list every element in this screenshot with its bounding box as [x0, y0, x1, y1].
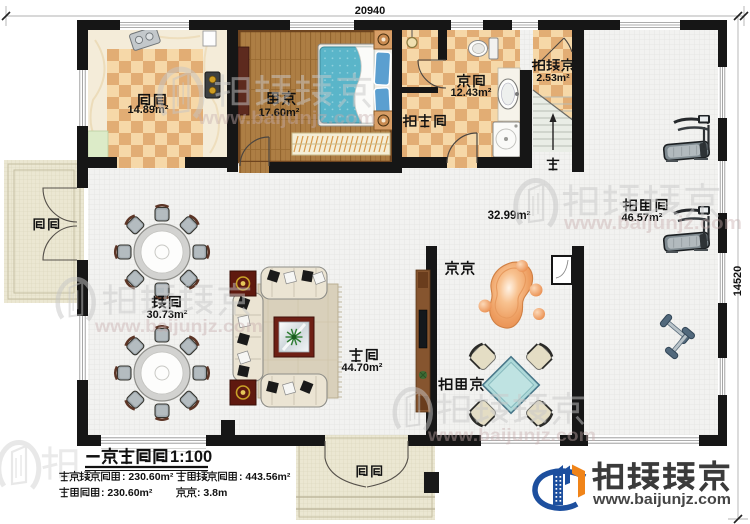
svg-text:20940: 20940: [355, 5, 386, 17]
svg-text:: 443.56m²: : 443.56m²: [239, 471, 291, 483]
svg-text:: 230.60m²: : 230.60m²: [101, 487, 153, 499]
svg-text:2.53m²: 2.53m²: [536, 72, 570, 84]
svg-text:www.baijunjz.com: www.baijunjz.com: [427, 425, 596, 445]
svg-text:www.baijunjz.com: www.baijunjz.com: [94, 316, 263, 336]
svg-text:www.baijunjz.com: www.baijunjz.com: [197, 107, 376, 128]
svg-text:: 230.60m²: : 230.60m²: [122, 471, 174, 483]
svg-text:: 3.8m: : 3.8m: [197, 487, 227, 499]
svg-text:www.baijunjz.com: www.baijunjz.com: [592, 492, 731, 508]
svg-text:www.baijunjz.com: www.baijunjz.com: [563, 212, 742, 233]
svg-text:44.70m²: 44.70m²: [342, 362, 383, 374]
svg-text:32.99m²: 32.99m²: [488, 210, 531, 222]
svg-text:14520: 14520: [732, 266, 744, 297]
svg-text:12.43m²: 12.43m²: [451, 87, 492, 99]
svg-text:1:100: 1:100: [170, 448, 212, 466]
